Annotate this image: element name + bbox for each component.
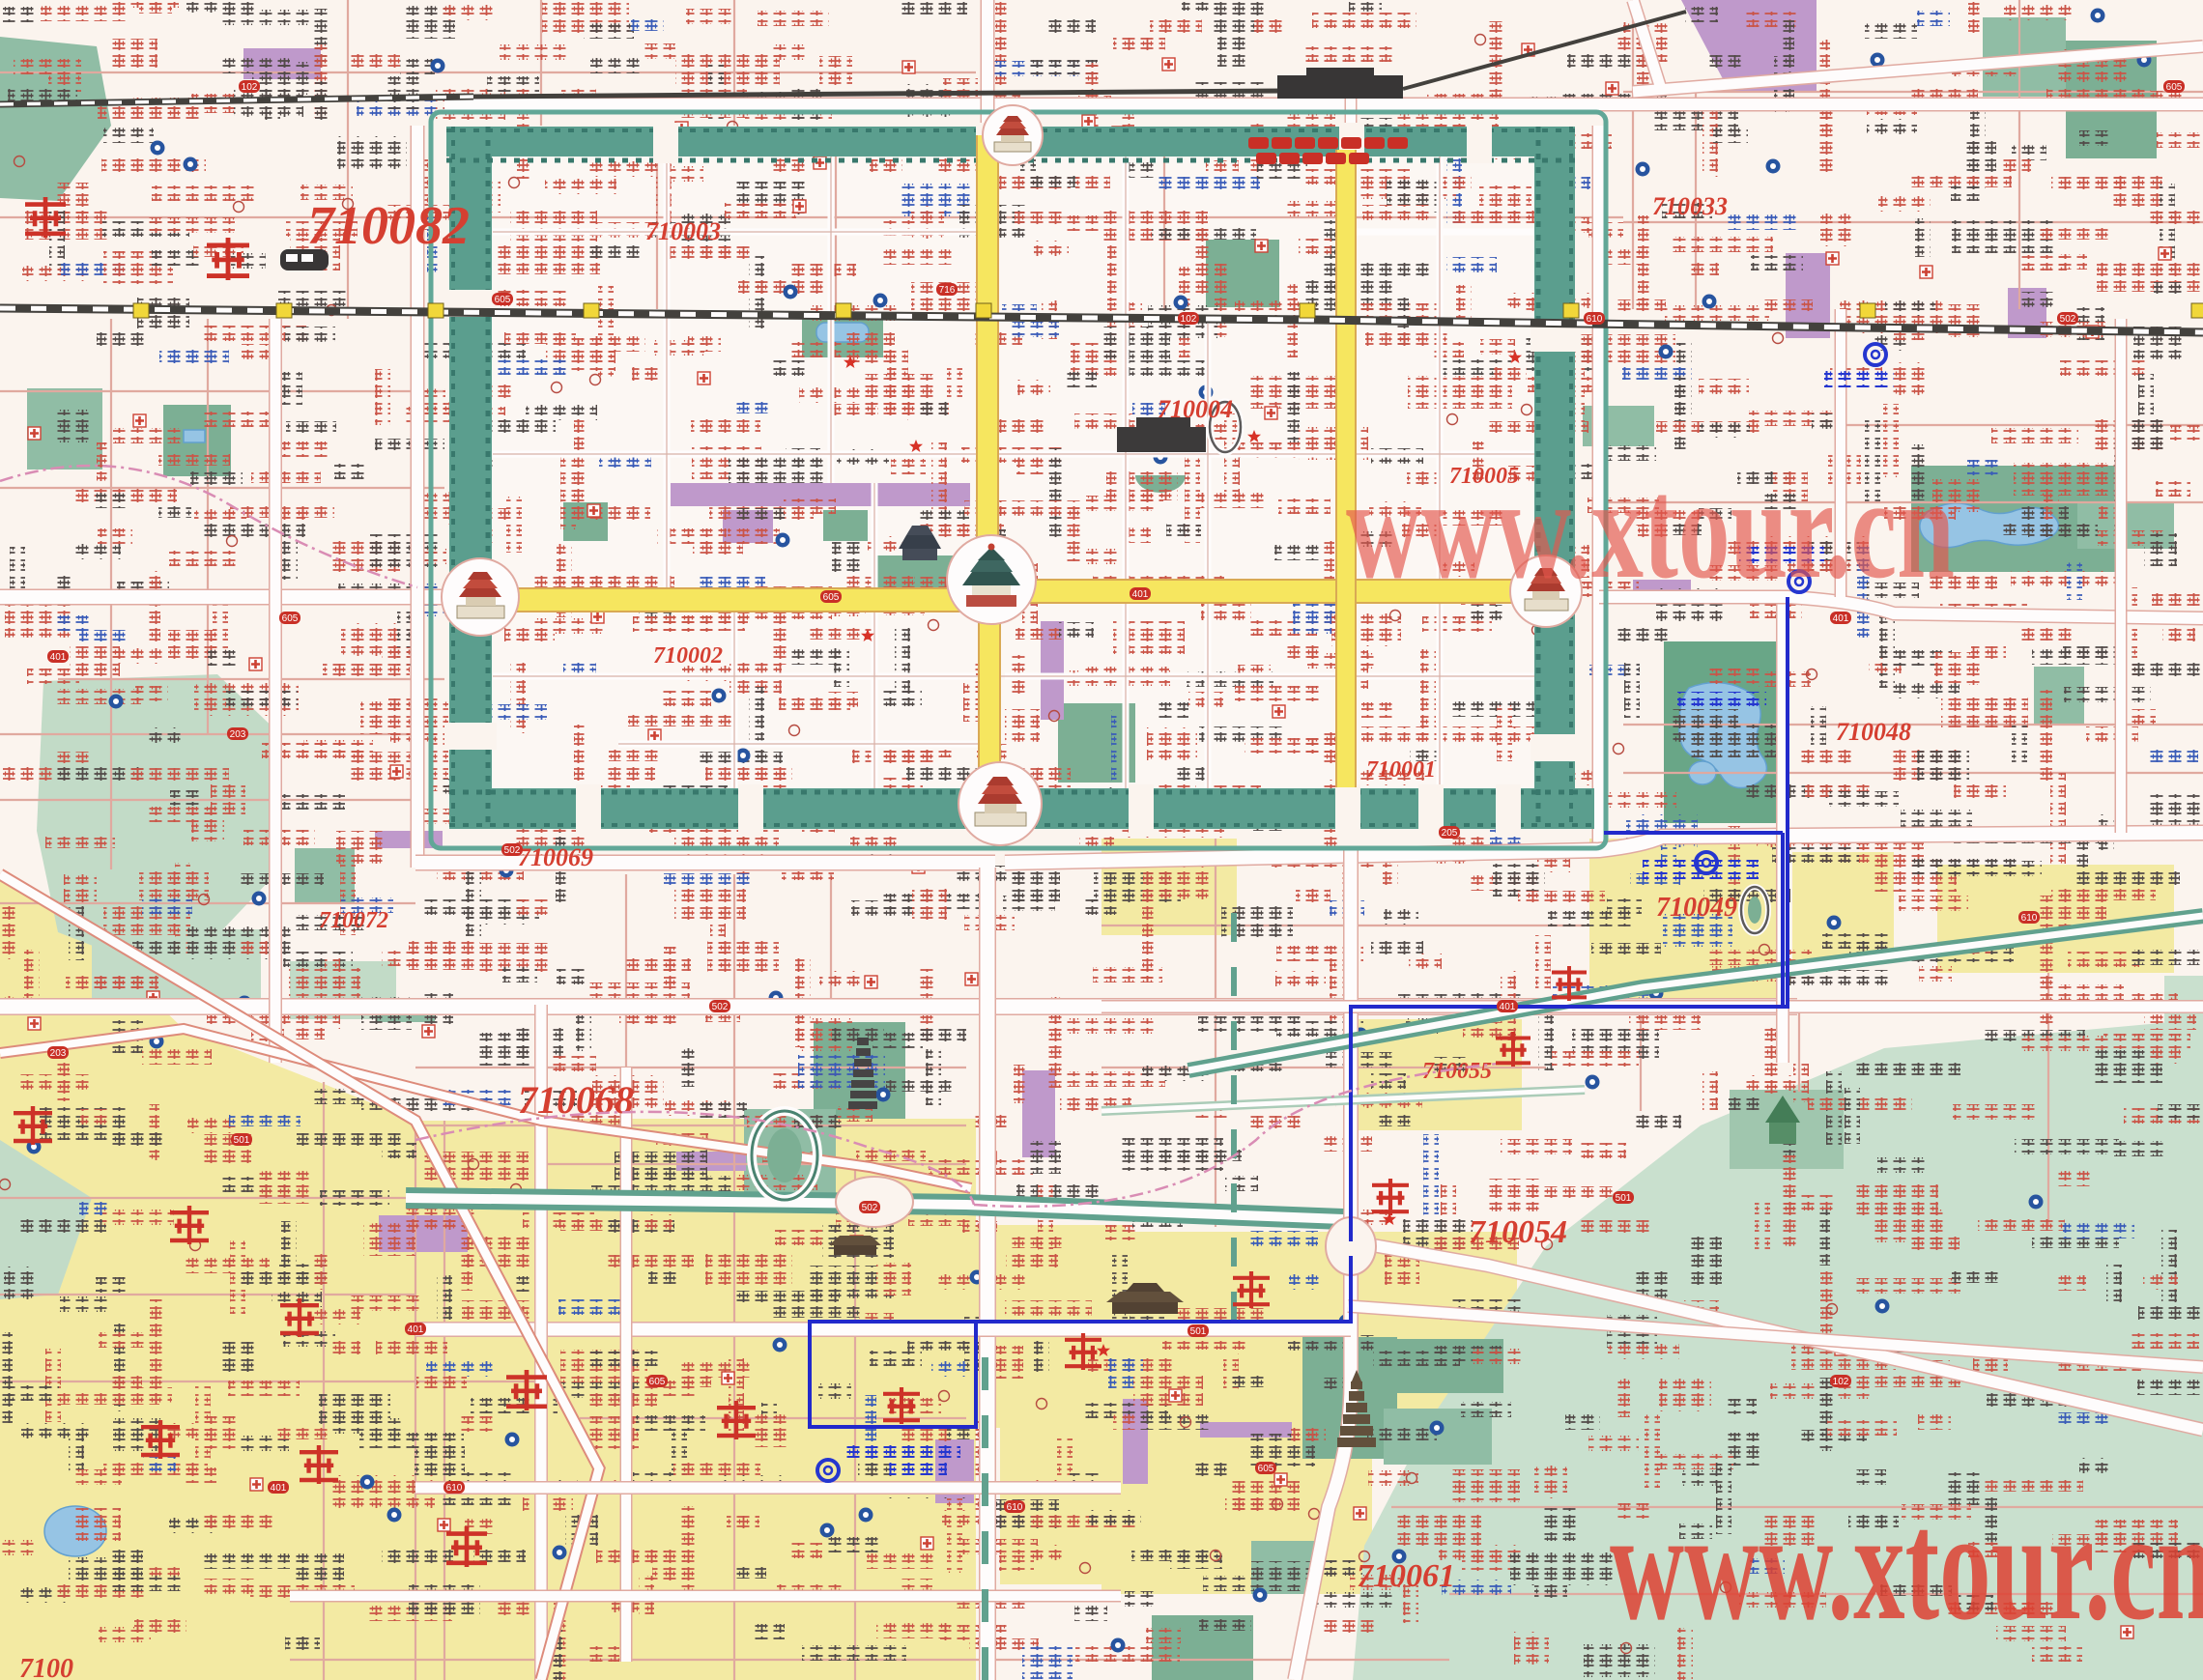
- svg-text:www.xtour.cn: www.xtour.cn: [1610, 1480, 2203, 1653]
- svg-text:www.xtour.cn: www.xtour.cn: [1346, 448, 1955, 609]
